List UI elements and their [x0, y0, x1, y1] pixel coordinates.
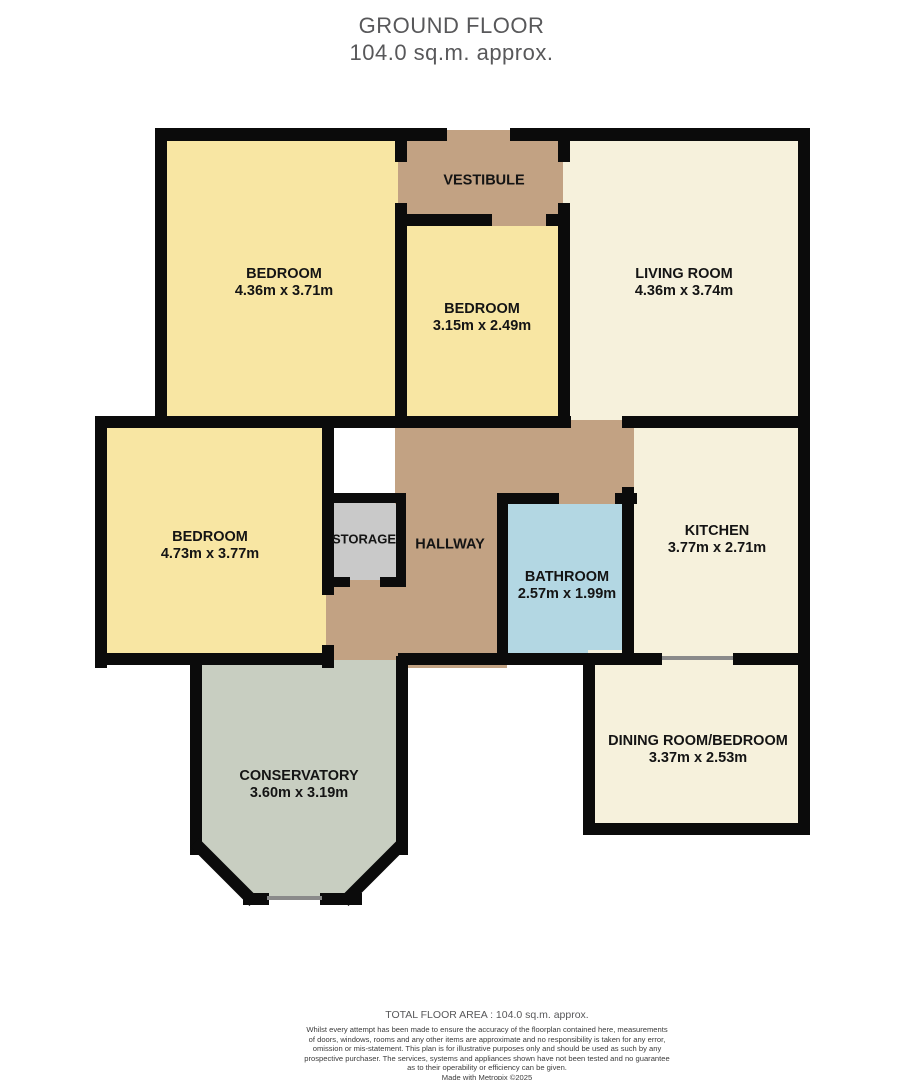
wall-segment — [622, 487, 634, 665]
room-label-line: DINING ROOM/BEDROOM — [608, 733, 788, 750]
room-label-line: 4.36m x 3.71m — [235, 283, 333, 300]
room-label-line: KITCHEN — [668, 523, 766, 540]
total-floor-area: TOTAL FLOOR AREA : 104.0 sq.m. approx. — [197, 1009, 777, 1021]
room-label-line: HALLWAY — [415, 537, 485, 554]
room-label-line: BEDROOM — [433, 301, 531, 318]
room-label-storage: STORAGE — [332, 531, 396, 548]
wall-segment — [396, 656, 408, 855]
disclaimer-line: omission or mis-statement. This plan is … — [197, 1044, 777, 1054]
wall-segment — [558, 140, 570, 162]
window-conservatory-bottom — [267, 896, 322, 900]
room-label-line: BATHROOM — [518, 569, 616, 586]
room-label-line: BEDROOM — [161, 529, 259, 546]
room-label-vestibule: VESTIBULE — [443, 173, 524, 190]
wall-segment — [497, 493, 508, 665]
wall-segment — [396, 493, 406, 587]
wall-segment — [395, 225, 407, 428]
room-label-living-room: LIVING ROOM4.36m x 3.74m — [635, 266, 733, 300]
room-floor-hallway-lower — [326, 580, 408, 668]
wall-segment — [395, 214, 492, 226]
room-label-line: 3.15m x 2.49m — [433, 318, 531, 335]
made-with-credit: Made with Metropix ©2025 — [197, 1073, 777, 1080]
room-label-line: 3.60m x 3.19m — [239, 785, 358, 802]
wall-segment — [322, 428, 334, 595]
wall-segment — [622, 416, 810, 428]
wall-segment — [322, 493, 406, 503]
disclaimer-line: prospective purchaser. The services, sys… — [197, 1054, 777, 1064]
wall-segment — [798, 128, 810, 665]
wall-segment — [395, 140, 407, 162]
room-label-line: BEDROOM — [235, 266, 333, 283]
wall-segment — [798, 653, 810, 835]
room-label-kitchen: KITCHEN3.77m x 2.71m — [668, 523, 766, 557]
room-label-bedroom-middle: BEDROOM3.15m x 2.49m — [433, 301, 531, 335]
disclaimer-line: Whilst every attempt has been made to en… — [197, 1025, 777, 1035]
wall-segment — [380, 577, 406, 587]
room-label-line: VESTIBULE — [443, 173, 524, 190]
room-label-line: 4.73m x 3.77m — [161, 546, 259, 563]
room-label-line: CONSERVATORY — [239, 768, 358, 785]
room-label-line: 2.57m x 1.99m — [518, 586, 616, 603]
wall-segment — [190, 656, 202, 855]
wall-segment — [510, 128, 810, 141]
plan-footer: TOTAL FLOOR AREA : 104.0 sq.m. approx. W… — [197, 1009, 777, 1080]
wall-segment — [583, 823, 810, 835]
wall-segment — [558, 203, 570, 428]
floorplan-page: GROUND FLOOR 104.0 sq.m. approx. BEDROOM… — [0, 0, 903, 1080]
room-floor-hallway-mid — [398, 499, 507, 668]
room-label-bathroom: BATHROOM2.57m x 1.99m — [518, 569, 616, 603]
room-label-bedroom-top-left: BEDROOM4.36m x 3.71m — [235, 266, 333, 300]
room-label-line: LIVING ROOM — [635, 266, 733, 283]
room-label-bedroom-left: BEDROOM4.73m x 3.77m — [161, 529, 259, 563]
room-label-line: 3.77m x 2.71m — [668, 540, 766, 557]
room-label-dining-room: DINING ROOM/BEDROOM3.37m x 2.53m — [608, 733, 788, 767]
room-label-hallway: HALLWAY — [415, 537, 485, 554]
room-label-conservatory: CONSERVATORY3.60m x 3.19m — [239, 768, 358, 802]
room-label-line: 4.36m x 3.74m — [635, 283, 733, 300]
floorplan-drawing: BEDROOM4.36m x 3.71mVESTIBULEBEDROOM3.15… — [0, 0, 903, 1080]
wall-segment — [155, 128, 167, 428]
wall-segment — [95, 653, 332, 665]
disclaimer-line: as to their operability or efficiency ca… — [197, 1063, 777, 1073]
disclaimer-line: of doors, windows, rooms and any other i… — [197, 1035, 777, 1045]
room-label-line: 3.37m x 2.53m — [608, 750, 788, 767]
wall-segment — [583, 653, 595, 835]
wall-segment — [322, 645, 334, 668]
wall-segment — [160, 416, 571, 428]
room-label-line: STORAGE — [332, 531, 396, 548]
window-dining-top — [662, 656, 733, 660]
room-floor-hallway-upper — [395, 420, 634, 504]
wall-segment — [95, 416, 107, 668]
